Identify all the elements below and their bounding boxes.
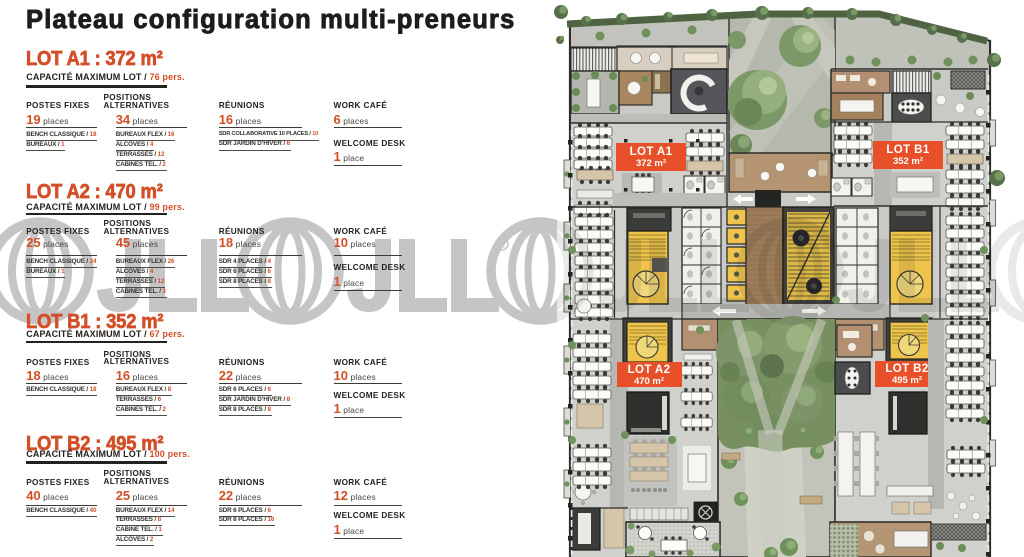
svg-text:495 m²: 495 m² bbox=[892, 375, 922, 386]
svg-text:LOT A1: LOT A1 bbox=[630, 146, 673, 158]
svg-text:LOT A2: LOT A2 bbox=[628, 364, 671, 376]
svg-text:352 m²: 352 m² bbox=[893, 156, 923, 167]
svg-text:372 m²: 372 m² bbox=[636, 158, 666, 169]
svg-text:LOT B1: LOT B1 bbox=[886, 144, 929, 156]
svg-text:LOT B2: LOT B2 bbox=[885, 363, 928, 375]
svg-text:470 m²: 470 m² bbox=[634, 376, 664, 387]
